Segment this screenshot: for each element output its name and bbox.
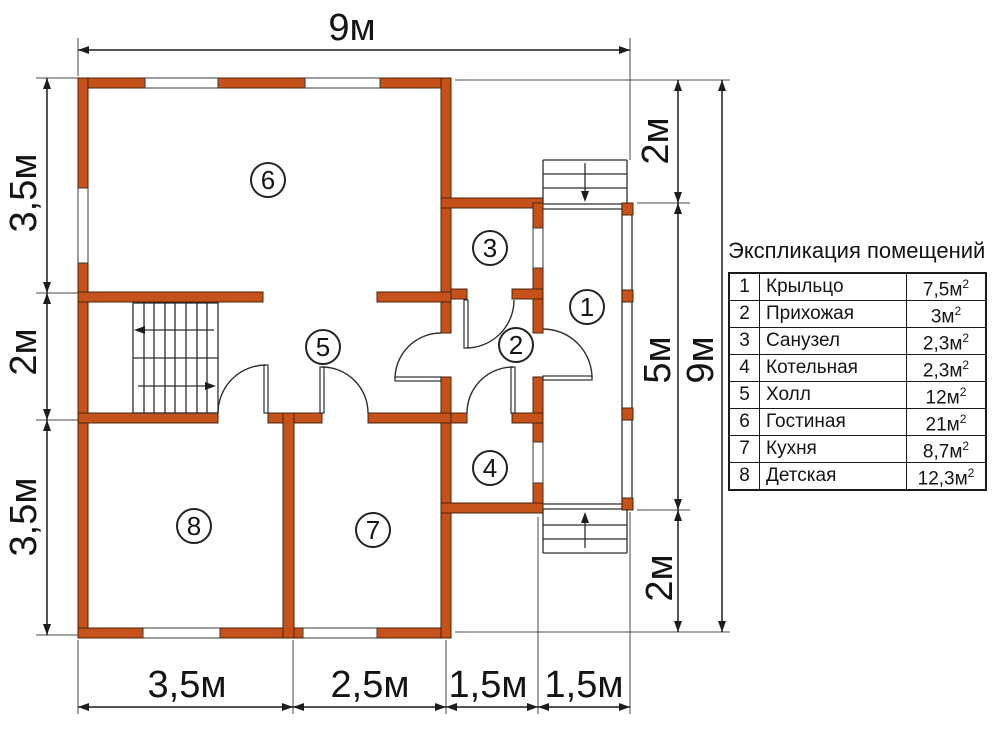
area-sup: 2 <box>962 277 969 291</box>
room-legend: Экспликация помещений 1 Крыльцо 7,5м2 2 … <box>728 240 994 491</box>
legend-table: 1 Крыльцо 7,5м2 2 Прихожая 3м2 3 Санузел… <box>728 272 987 491</box>
table-row: 5 Холл 12м2 <box>730 381 985 408</box>
room-marker-7: 7 <box>366 515 380 545</box>
room-marker-1: 1 <box>580 292 594 322</box>
room-marker-8: 8 <box>187 511 201 541</box>
room-name-cell: Детская <box>760 463 907 489</box>
room-name-cell: Крыльцо <box>760 274 907 300</box>
steps-direction-arrow <box>581 512 589 523</box>
table-row: 1 Крыльцо 7,5м2 <box>730 274 985 300</box>
dim-label-bottom-2: 2,5м <box>331 664 410 706</box>
room-number-cell: 1 <box>730 274 760 300</box>
room-name-cell: Холл <box>760 382 907 408</box>
porch-column <box>622 203 633 215</box>
area-sup: 2 <box>960 385 967 399</box>
room-marker-6: 6 <box>261 165 275 195</box>
area-sup: 2 <box>960 412 967 426</box>
door-leaf <box>464 300 468 348</box>
area-sup: 2 <box>962 358 969 372</box>
room-name-cell: Котельная <box>760 355 907 381</box>
area-sup: 2 <box>962 439 969 453</box>
window <box>145 78 218 88</box>
room-marker-2: 2 <box>509 330 523 360</box>
entry-steps-top <box>543 160 627 203</box>
porch <box>543 203 633 510</box>
door-swing <box>395 333 441 379</box>
dim-label-width-total: 9м <box>328 7 375 49</box>
room-number-cell: 5 <box>730 382 760 408</box>
room-marker-4: 4 <box>483 453 497 483</box>
room-marker-3: 3 <box>483 233 497 263</box>
dim-label-left-top: 3,5м <box>3 154 45 233</box>
window <box>143 628 220 638</box>
room-name-cell: Кухня <box>760 436 907 462</box>
door-leaf <box>511 367 515 413</box>
dim-label-right-total: 9м <box>680 336 722 383</box>
dim-label-left-mid: 2м <box>3 328 45 375</box>
staircase <box>133 303 218 413</box>
window <box>305 78 380 88</box>
dimension-lines <box>43 46 726 711</box>
area-value: 12,3м <box>918 468 968 489</box>
door-leaf <box>264 365 268 413</box>
room-name-cell: Гостиная <box>760 409 907 435</box>
porch-column <box>622 408 633 420</box>
room-area-cell: 12,3м2 <box>907 460 985 492</box>
window <box>303 628 377 638</box>
room-number-cell: 2 <box>730 301 760 327</box>
door-swing <box>467 367 513 413</box>
table-row: 3 Санузел 2,3м2 <box>730 327 985 354</box>
door-leaf <box>543 376 592 380</box>
room-name-cell: Санузел <box>760 328 907 354</box>
room-number-cell: 3 <box>730 328 760 354</box>
area-sup: 2 <box>962 331 969 345</box>
stair-arrow-up <box>134 326 145 334</box>
window <box>533 442 543 483</box>
room-number-cell: 4 <box>730 355 760 381</box>
door-swing <box>322 367 368 413</box>
room-number-cell: 6 <box>730 409 760 435</box>
dim-label-right-top: 2м <box>635 117 677 164</box>
area-sup: 2 <box>968 466 975 480</box>
room-marker-5: 5 <box>316 332 330 362</box>
dim-label-right-mid: 5м <box>637 336 679 383</box>
entry-steps-bottom <box>543 509 627 553</box>
dim-label-bottom-1: 3,5м <box>148 664 227 706</box>
dim-label-right-bottom: 2м <box>639 554 681 601</box>
dimension-labels: 9м 3,5м 2м 3,5м 2м 5м 2м 9м 3,5м 2,5м 1,… <box>3 7 722 706</box>
room-number-cell: 8 <box>730 463 760 489</box>
porch-column <box>622 498 633 510</box>
steps-direction-arrow <box>581 191 589 202</box>
legend-title: Экспликация помещений <box>728 240 994 262</box>
area-sup: 2 <box>954 304 961 318</box>
door-swing <box>543 329 592 378</box>
table-row: 7 Кухня 8,7м2 <box>730 435 985 462</box>
table-row: 4 Котельная 2,3м2 <box>730 354 985 381</box>
door-leaf <box>395 377 441 381</box>
dim-label-left-bottom: 3,5м <box>3 478 45 557</box>
table-row: 6 Гостиная 21м2 <box>730 408 985 435</box>
window <box>78 188 88 263</box>
extension-lines <box>36 38 730 714</box>
door-swing <box>218 365 266 413</box>
porch-column <box>622 290 633 302</box>
dim-label-bottom-3: 1,5м <box>449 664 528 706</box>
dim-label-bottom-4: 1,5м <box>545 664 624 706</box>
table-row: 8 Детская 12,3м2 <box>730 462 985 489</box>
table-row: 2 Прихожая 3м2 <box>730 300 985 327</box>
room-number-cell: 7 <box>730 436 760 462</box>
window <box>533 228 543 268</box>
door-leaf <box>320 367 324 413</box>
stair-arrow-down <box>205 382 216 390</box>
room-name-cell: Прихожая <box>760 301 907 327</box>
